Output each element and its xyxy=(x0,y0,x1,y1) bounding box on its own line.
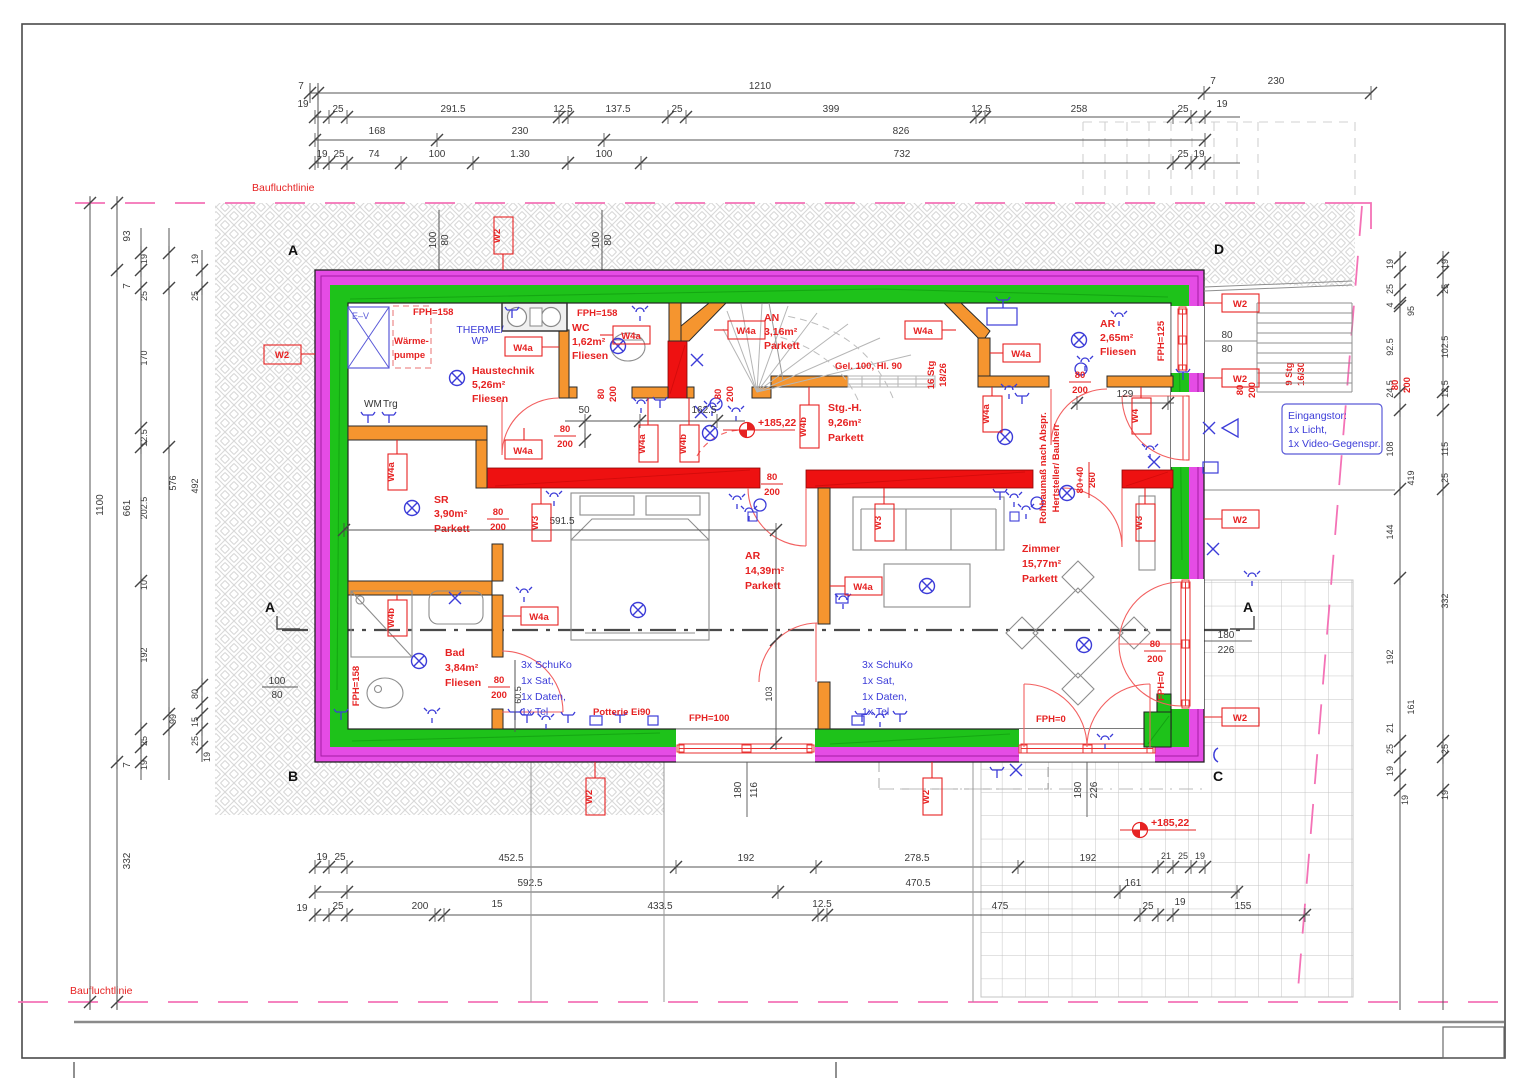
svg-text:W4a: W4a xyxy=(529,612,549,623)
svg-text:14,39m²: 14,39m² xyxy=(745,565,785,577)
svg-text:FPH=125: FPH=125 xyxy=(1156,320,1167,361)
svg-text:AN: AN xyxy=(764,312,779,324)
svg-text:19: 19 xyxy=(1193,149,1205,160)
svg-text:19: 19 xyxy=(297,99,309,110)
svg-text:W2: W2 xyxy=(492,229,503,243)
svg-text:25: 25 xyxy=(1178,851,1188,861)
svg-text:FPH=158: FPH=158 xyxy=(413,307,453,318)
svg-text:732: 732 xyxy=(894,149,911,160)
svg-text:12.5: 12.5 xyxy=(812,899,832,910)
svg-text:433.5: 433.5 xyxy=(647,901,672,912)
svg-text:80+40: 80+40 xyxy=(1075,467,1086,494)
svg-text:12.5: 12.5 xyxy=(139,429,149,447)
svg-text:60.5: 60.5 xyxy=(513,686,523,704)
svg-text:Wärme-: Wärme- xyxy=(394,336,429,347)
svg-text:180: 180 xyxy=(1073,781,1084,798)
svg-text:200: 200 xyxy=(725,386,736,402)
svg-text:W4a: W4a xyxy=(513,446,533,457)
svg-text:19: 19 xyxy=(202,752,212,762)
svg-text:9,26m²: 9,26m² xyxy=(828,417,862,429)
svg-text:Stg.-H.: Stg.-H. xyxy=(828,402,862,414)
svg-text:25: 25 xyxy=(332,901,344,912)
svg-text:116: 116 xyxy=(749,782,760,798)
svg-text:80: 80 xyxy=(1221,344,1233,355)
svg-text:16/30: 16/30 xyxy=(1296,362,1307,386)
svg-text:25: 25 xyxy=(190,736,200,746)
svg-text:80: 80 xyxy=(767,472,778,483)
svg-text:Gel. 100, Hl. 90: Gel. 100, Hl. 90 xyxy=(835,361,902,372)
svg-text:Parkett: Parkett xyxy=(1022,573,1058,585)
svg-text:80: 80 xyxy=(1075,370,1086,381)
svg-text:3,16m²: 3,16m² xyxy=(764,326,798,338)
svg-text:80: 80 xyxy=(1390,380,1401,391)
svg-text:475: 475 xyxy=(992,901,1009,912)
svg-text:FPH=158: FPH=158 xyxy=(577,308,617,319)
svg-text:Parkett: Parkett xyxy=(828,432,864,444)
svg-text:7: 7 xyxy=(122,283,133,289)
svg-text:168: 168 xyxy=(369,126,386,137)
svg-text:7: 7 xyxy=(122,762,133,768)
svg-text:192: 192 xyxy=(738,853,755,864)
svg-text:W2: W2 xyxy=(1233,515,1247,526)
svg-text:19: 19 xyxy=(1385,766,1395,776)
svg-text:18/26: 18/26 xyxy=(938,363,949,387)
svg-text:576: 576 xyxy=(168,475,178,490)
svg-text:1x Tel: 1x Tel xyxy=(521,706,548,718)
svg-text:74: 74 xyxy=(368,149,380,160)
svg-text:19: 19 xyxy=(139,760,149,770)
svg-text:W4a: W4a xyxy=(853,582,873,593)
svg-text:180: 180 xyxy=(1218,630,1235,641)
svg-text:19: 19 xyxy=(296,903,308,914)
svg-text:226: 226 xyxy=(1089,781,1100,798)
svg-text:W4b: W4b xyxy=(678,434,689,454)
svg-text:W4b: W4b xyxy=(798,417,809,437)
svg-text:W4a: W4a xyxy=(513,343,533,354)
svg-text:+185,22: +185,22 xyxy=(1151,817,1189,829)
svg-text:4: 4 xyxy=(1385,302,1395,307)
svg-text:161: 161 xyxy=(1125,878,1142,889)
svg-text:C: C xyxy=(1213,768,1223,784)
svg-text:100: 100 xyxy=(269,676,286,687)
svg-text:108: 108 xyxy=(1385,441,1395,456)
svg-text:80: 80 xyxy=(190,689,200,699)
svg-text:Fliesen: Fliesen xyxy=(572,350,608,362)
svg-text:25: 25 xyxy=(1440,473,1450,483)
svg-text:1x Daten,: 1x Daten, xyxy=(521,691,566,703)
svg-text:200: 200 xyxy=(764,487,780,498)
svg-text:115: 115 xyxy=(1440,442,1450,456)
svg-text:9 Stg: 9 Stg xyxy=(1284,362,1295,385)
svg-text:19: 19 xyxy=(139,254,149,264)
svg-text:W4a: W4a xyxy=(913,326,933,337)
svg-text:93: 93 xyxy=(122,230,133,242)
svg-text:FPH=0: FPH=0 xyxy=(1036,714,1066,725)
svg-text:3,84m²: 3,84m² xyxy=(445,662,479,674)
svg-text:826: 826 xyxy=(893,126,910,137)
svg-text:200: 200 xyxy=(1247,382,1258,398)
svg-text:Trg: Trg xyxy=(383,399,398,410)
svg-text:25: 25 xyxy=(139,736,149,746)
svg-text:180: 180 xyxy=(733,781,744,798)
svg-text:19: 19 xyxy=(1216,99,1228,110)
svg-text:W3: W3 xyxy=(1134,516,1145,530)
svg-text:A: A xyxy=(288,242,298,258)
svg-text:162.5: 162.5 xyxy=(691,405,716,416)
svg-text:Bad: Bad xyxy=(445,647,465,659)
svg-text:100: 100 xyxy=(428,231,439,248)
svg-text:SR: SR xyxy=(434,494,449,506)
svg-text:W4a: W4a xyxy=(1011,349,1031,360)
svg-text:Fliesen: Fliesen xyxy=(1100,346,1136,358)
svg-text:25: 25 xyxy=(1385,744,1395,754)
svg-text:Baufluchtlinie: Baufluchtlinie xyxy=(70,985,133,997)
svg-text:AR: AR xyxy=(745,550,761,562)
svg-text:230: 230 xyxy=(1268,76,1285,87)
svg-text:99: 99 xyxy=(168,714,178,724)
svg-text:399: 399 xyxy=(823,104,840,115)
svg-text:80: 80 xyxy=(440,234,451,246)
svg-text:W4a: W4a xyxy=(736,326,756,337)
svg-text:100: 100 xyxy=(596,149,613,160)
svg-text:WC: WC xyxy=(572,322,590,334)
svg-text:19: 19 xyxy=(316,852,328,863)
svg-text:19: 19 xyxy=(1400,795,1410,805)
svg-text:15: 15 xyxy=(491,899,503,910)
svg-text:15: 15 xyxy=(190,717,200,727)
svg-text:50: 50 xyxy=(578,405,590,416)
svg-text:W4a: W4a xyxy=(981,404,992,424)
svg-text:100: 100 xyxy=(429,149,446,160)
svg-text:10: 10 xyxy=(139,580,149,590)
svg-text:3x SchuKo: 3x SchuKo xyxy=(862,659,913,671)
svg-text:A: A xyxy=(265,599,275,615)
svg-text:7: 7 xyxy=(1210,76,1216,87)
svg-text:+185,22: +185,22 xyxy=(758,417,796,429)
svg-text:Parkett: Parkett xyxy=(764,340,800,352)
svg-text:25: 25 xyxy=(139,291,149,301)
svg-text:137.5: 137.5 xyxy=(605,104,630,115)
svg-text:12.5: 12.5 xyxy=(553,104,573,115)
svg-text:25: 25 xyxy=(1440,744,1450,754)
svg-text:258: 258 xyxy=(1071,104,1088,115)
svg-text:W2: W2 xyxy=(1233,713,1247,724)
svg-text:592.5: 592.5 xyxy=(517,878,542,889)
svg-text:5,26m²: 5,26m² xyxy=(472,379,506,391)
svg-text:12.5: 12.5 xyxy=(1440,380,1450,398)
svg-text:12.5: 12.5 xyxy=(971,104,991,115)
svg-text:Fliesen: Fliesen xyxy=(472,393,508,405)
svg-text:3,90m²: 3,90m² xyxy=(434,508,468,520)
svg-text:W2: W2 xyxy=(921,790,932,804)
svg-text:W3: W3 xyxy=(873,516,884,530)
svg-text:WP: WP xyxy=(472,335,489,347)
svg-text:230: 230 xyxy=(512,126,529,137)
svg-text:170: 170 xyxy=(139,350,149,365)
svg-text:Baufluchtlinie: Baufluchtlinie xyxy=(252,182,315,194)
svg-text:FPH=0: FPH=0 xyxy=(1156,671,1167,701)
svg-text:W4a: W4a xyxy=(386,462,397,482)
svg-text:200: 200 xyxy=(1072,385,1088,396)
svg-text:A: A xyxy=(1243,599,1253,615)
svg-text:W4a: W4a xyxy=(621,331,641,342)
svg-text:W4: W4 xyxy=(1130,408,1141,423)
svg-text:25: 25 xyxy=(332,104,344,115)
svg-text:200: 200 xyxy=(491,690,507,701)
svg-text:278.5: 278.5 xyxy=(904,853,929,864)
svg-text:Parkett: Parkett xyxy=(434,523,470,535)
svg-text:80: 80 xyxy=(560,424,571,435)
svg-text:161: 161 xyxy=(1406,699,1416,714)
svg-text:B: B xyxy=(288,768,298,784)
svg-text:25: 25 xyxy=(333,149,345,160)
svg-text:155: 155 xyxy=(1235,901,1252,912)
svg-text:25: 25 xyxy=(334,852,346,863)
svg-text:80: 80 xyxy=(494,675,505,686)
svg-text:332: 332 xyxy=(122,852,133,869)
svg-text:W2: W2 xyxy=(275,350,289,361)
svg-text:591.5: 591.5 xyxy=(549,516,574,527)
svg-text:92.5: 92.5 xyxy=(1385,338,1395,356)
svg-text:200: 200 xyxy=(490,522,506,533)
svg-text:Rohbaumaß nach Abspr.: Rohbaumaß nach Abspr. xyxy=(1038,412,1049,524)
svg-text:80: 80 xyxy=(713,389,724,400)
svg-text:200: 200 xyxy=(557,439,573,450)
svg-text:202.5: 202.5 xyxy=(139,497,149,520)
svg-text:1x Tel: 1x Tel xyxy=(862,706,889,718)
svg-text:WM: WM xyxy=(364,399,382,410)
svg-text:200: 200 xyxy=(1402,377,1413,393)
svg-text:103: 103 xyxy=(764,686,774,701)
svg-text:1.30: 1.30 xyxy=(510,149,530,160)
svg-text:W2: W2 xyxy=(1233,299,1247,310)
svg-text:661: 661 xyxy=(122,499,133,516)
svg-text:102.5: 102.5 xyxy=(1440,336,1450,359)
svg-text:1x Sat,: 1x Sat, xyxy=(862,675,895,687)
svg-text:80: 80 xyxy=(493,507,504,518)
svg-text:129: 129 xyxy=(1117,389,1134,400)
svg-text:291.5: 291.5 xyxy=(440,104,465,115)
svg-text:Potterie Ei90: Potterie Ei90 xyxy=(593,707,651,718)
svg-text:470.5: 470.5 xyxy=(905,878,930,889)
svg-text:1x Licht,: 1x Licht, xyxy=(1288,424,1327,436)
svg-text:19: 19 xyxy=(1440,259,1450,269)
svg-text:95: 95 xyxy=(1406,306,1416,316)
svg-text:Haustechnik: Haustechnik xyxy=(472,365,535,377)
svg-text:AR: AR xyxy=(1100,318,1116,330)
svg-text:16 Stg: 16 Stg xyxy=(926,361,937,390)
svg-text:80: 80 xyxy=(271,690,283,701)
svg-text:Fliesen: Fliesen xyxy=(445,677,481,689)
svg-text:226: 226 xyxy=(1218,645,1235,656)
svg-text:Zimmer: Zimmer xyxy=(1022,543,1060,555)
svg-text:W4a: W4a xyxy=(637,434,648,454)
svg-text:25: 25 xyxy=(1177,104,1189,115)
svg-text:25: 25 xyxy=(1142,901,1154,912)
svg-text:80: 80 xyxy=(1235,385,1246,396)
svg-text:25: 25 xyxy=(1177,149,1189,160)
svg-text:19: 19 xyxy=(1174,897,1186,908)
svg-text:21: 21 xyxy=(1385,723,1395,733)
svg-text:FPH=158: FPH=158 xyxy=(351,666,362,706)
svg-text:192: 192 xyxy=(1080,853,1097,864)
svg-text:1,62m²: 1,62m² xyxy=(572,336,606,348)
svg-text:19: 19 xyxy=(190,254,200,264)
svg-text:1x Sat,: 1x Sat, xyxy=(521,675,554,687)
svg-text:80: 80 xyxy=(603,234,614,246)
svg-text:W3: W3 xyxy=(530,516,541,530)
svg-text:332: 332 xyxy=(1440,593,1450,608)
svg-text:452.5: 452.5 xyxy=(498,853,523,864)
svg-text:3x SchuKo: 3x SchuKo xyxy=(521,659,572,671)
svg-text:19: 19 xyxy=(1385,259,1395,269)
svg-text:19: 19 xyxy=(316,149,328,160)
svg-text:419: 419 xyxy=(1406,470,1416,485)
svg-text:25: 25 xyxy=(671,104,683,115)
svg-text:192: 192 xyxy=(139,647,149,662)
svg-text:25: 25 xyxy=(1385,284,1395,294)
svg-text:W4b: W4b xyxy=(386,608,397,628)
svg-text:1100: 1100 xyxy=(95,494,106,516)
svg-text:1x Daten,: 1x Daten, xyxy=(862,691,907,703)
svg-text:7: 7 xyxy=(298,81,304,92)
svg-text:80: 80 xyxy=(1150,639,1161,650)
svg-text:E–V: E–V xyxy=(352,311,369,321)
svg-text:Eingangstor:: Eingangstor: xyxy=(1288,410,1347,422)
svg-text:200: 200 xyxy=(608,386,619,402)
svg-text:W2: W2 xyxy=(584,790,595,804)
svg-text:25: 25 xyxy=(190,291,200,301)
svg-text:19: 19 xyxy=(1440,790,1450,800)
svg-text:80: 80 xyxy=(596,389,607,400)
svg-text:pumpe: pumpe xyxy=(394,350,425,361)
svg-text:144: 144 xyxy=(1385,524,1395,539)
svg-text:FPH=100: FPH=100 xyxy=(689,713,729,724)
svg-text:W2: W2 xyxy=(1233,374,1247,385)
svg-text:1210: 1210 xyxy=(749,81,772,92)
svg-text:200: 200 xyxy=(412,901,429,912)
svg-text:25: 25 xyxy=(1440,284,1450,294)
svg-text:100: 100 xyxy=(591,231,602,248)
svg-text:492: 492 xyxy=(190,478,200,493)
svg-text:200: 200 xyxy=(1147,654,1163,665)
svg-text:21: 21 xyxy=(1161,851,1171,861)
svg-text:19: 19 xyxy=(1195,851,1205,861)
svg-text:192: 192 xyxy=(1385,649,1395,664)
svg-text:2,65m²: 2,65m² xyxy=(1100,332,1134,344)
svg-text:Hertsteller/ Bauherr: Hertsteller/ Bauherr xyxy=(1051,423,1062,512)
svg-text:1x Video-Gegenspr.: 1x Video-Gegenspr. xyxy=(1288,438,1381,450)
svg-text:80: 80 xyxy=(1221,330,1233,341)
svg-text:15,77m²: 15,77m² xyxy=(1022,558,1062,570)
svg-text:D: D xyxy=(1214,241,1224,257)
